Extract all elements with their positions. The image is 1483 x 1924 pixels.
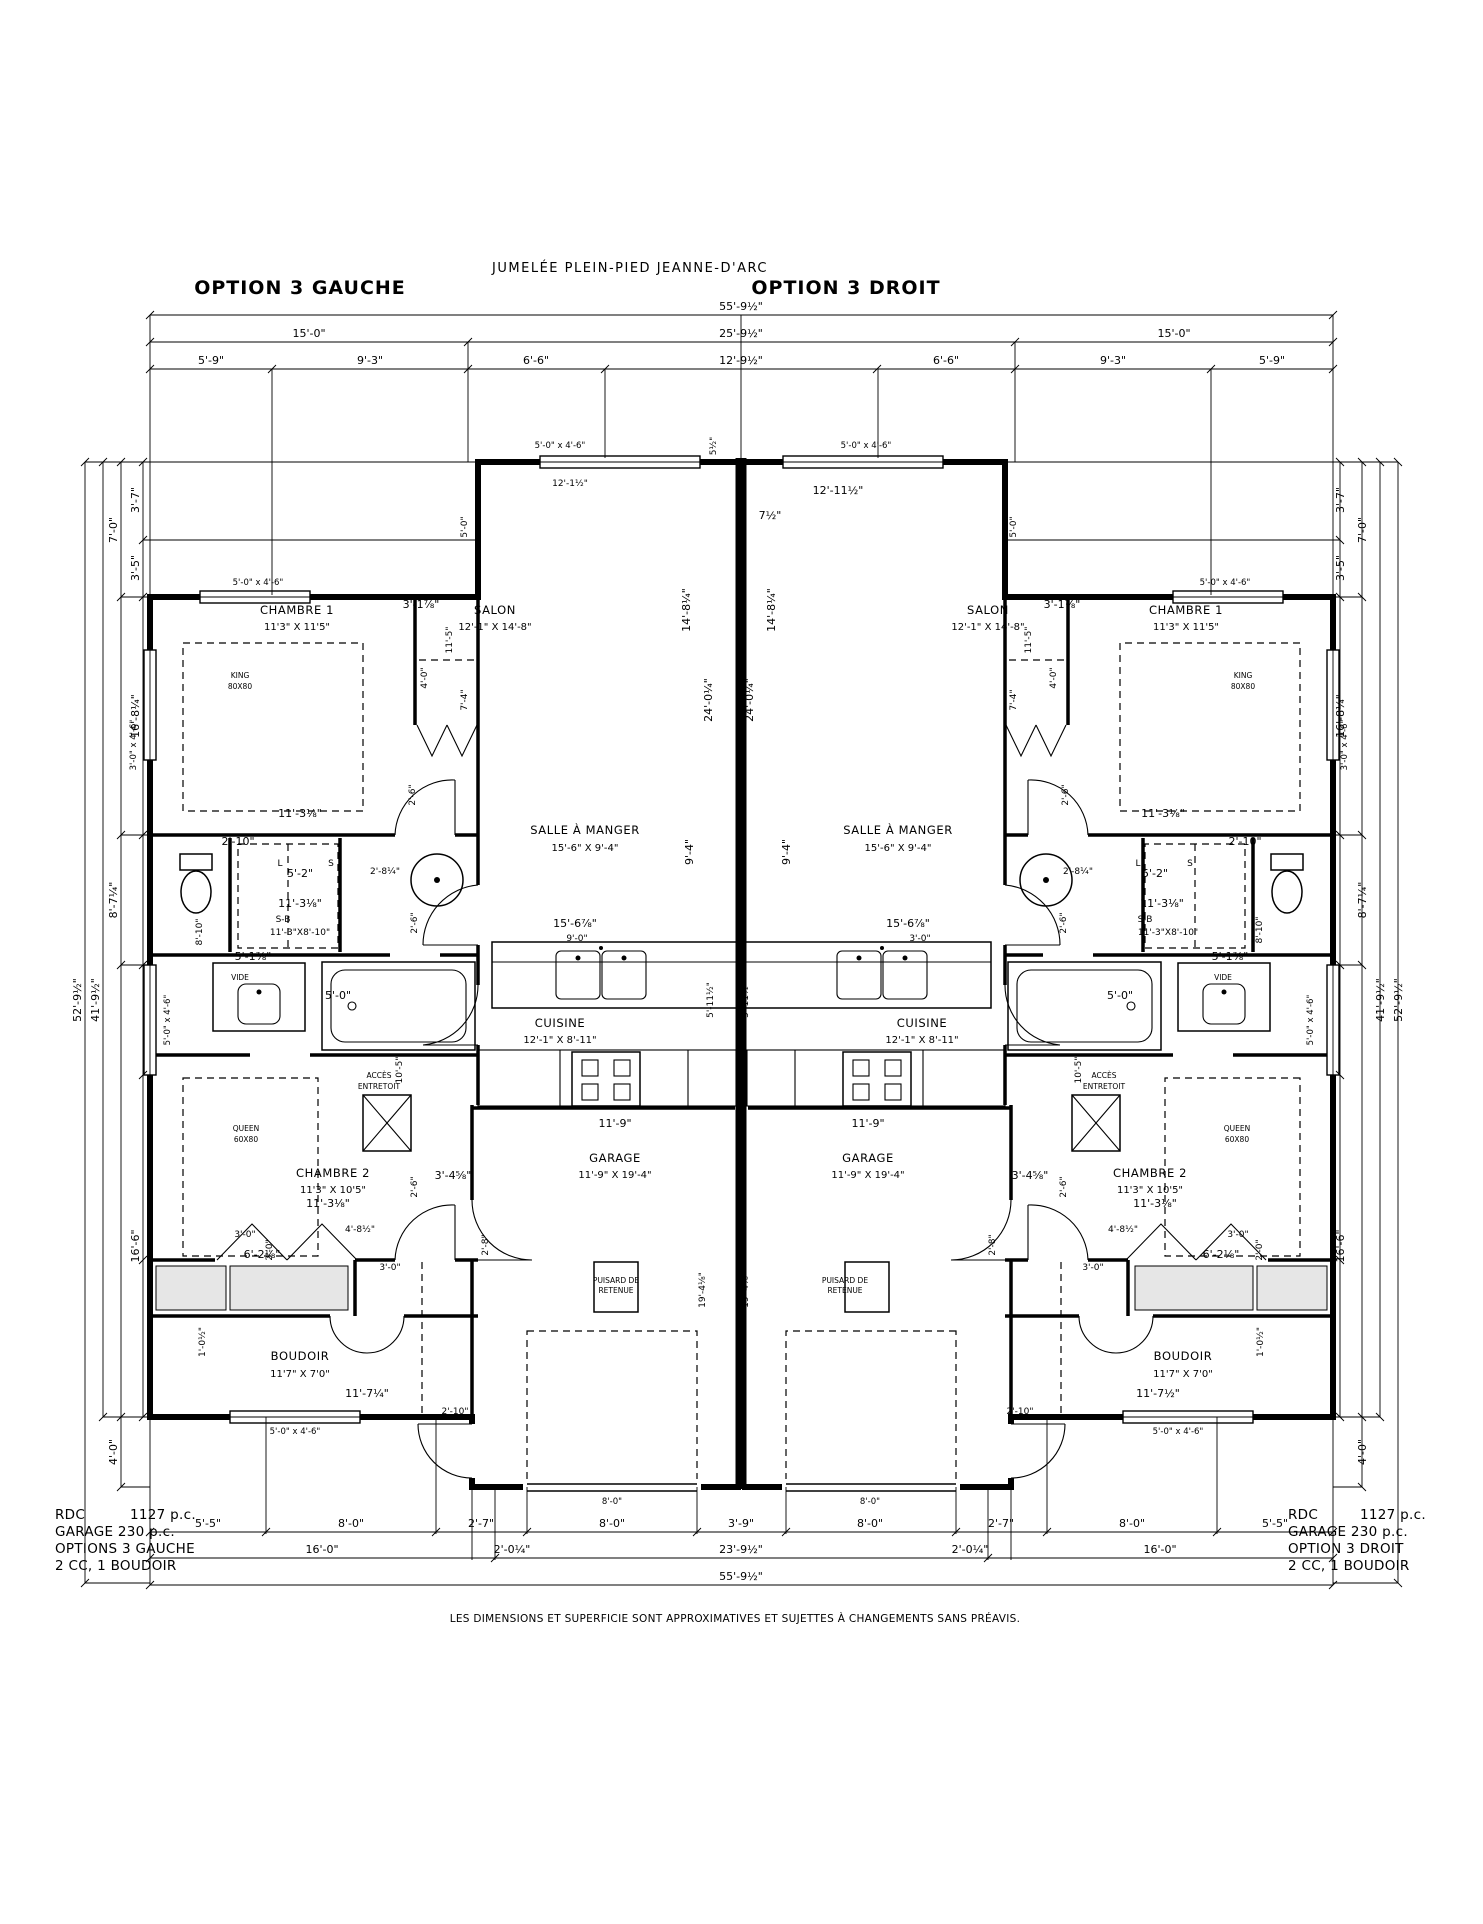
config-line: 2 CC, 1 BOUDOIR — [55, 1558, 177, 1574]
dim-label: 2'-8" — [988, 1234, 998, 1255]
rdc-label: RDC — [55, 1507, 85, 1523]
window-size-label: 5'-0" x 4'-6" — [841, 441, 892, 451]
room-size: 12'-1" X 14'-8" — [951, 622, 1024, 633]
dim-label: 10'-5" — [395, 1056, 405, 1083]
dim-label: 15'-6⅞" — [553, 917, 597, 930]
dim-label: 3'-1⅞" — [403, 598, 440, 611]
dim-label: 15'-0" — [1157, 327, 1190, 340]
window-size-label: 5'-0" x 4'-6" — [535, 441, 586, 451]
dim-label: 7'-4" — [1009, 689, 1019, 710]
dim-label: 2'-0" — [265, 1239, 275, 1260]
closet-shelf — [156, 1266, 226, 1310]
vanity-sink — [213, 963, 305, 1031]
dim-label: 12'-11½" — [813, 484, 864, 497]
kitchen-counter-stove — [478, 1050, 736, 1106]
dim-label: 3'-7" — [129, 487, 142, 513]
option-name: OPTIONS 3 GAUCHE — [55, 1541, 195, 1557]
dim-label: 8'-10" — [1255, 916, 1265, 943]
dim-label: 2'-8¼" — [1063, 867, 1093, 877]
config-line: 2 CC, 1 BOUDOIR — [1288, 1558, 1410, 1574]
bed-label: 80X80 — [1231, 682, 1255, 691]
room-label-chambre2: CHAMBRE 2 — [1113, 1166, 1187, 1180]
dim-label: 7½" — [759, 509, 782, 522]
dim-label: 5'-11½" — [706, 982, 716, 1018]
option-right-title: OPTION 3 DROIT — [751, 277, 940, 299]
garage-apron — [527, 1331, 697, 1481]
room-size: 15'-6" X 9'-4" — [865, 843, 932, 854]
dim-label: 9'-4" — [683, 839, 696, 865]
party-wall — [736, 458, 747, 1489]
dim-label: 11'-3⅛" — [1141, 807, 1185, 820]
dryer-label: S — [328, 859, 334, 869]
garage-door — [523, 1479, 701, 1495]
room-size: 12'-1" X 8'-11" — [523, 1035, 596, 1046]
room-size: 11'-9" X 19'-4" — [831, 1170, 904, 1181]
bed-label: QUEEN — [233, 1124, 259, 1133]
dim-label: 1'-0½" — [1256, 1327, 1266, 1357]
dim-label: 10'-5" — [1074, 1056, 1084, 1083]
dim-label: 8'-0" — [857, 1517, 883, 1530]
sump-label: PUISARD DE — [822, 1276, 868, 1285]
dim-label: 3'-5" — [129, 555, 142, 581]
dim-label: 11'-3⅛" — [1140, 897, 1184, 910]
room-size: 11'-3"X8'-10" — [270, 928, 330, 938]
dim-label: 5'-1⅞" — [1212, 950, 1249, 963]
dim-label: 9'-0" — [566, 934, 587, 944]
bed-label: 60X80 — [234, 1135, 258, 1144]
dim-label: 16'-0" — [305, 1543, 338, 1556]
dim-label: 2'-8¼" — [370, 867, 400, 877]
room-label-boudoir: BOUDOIR — [1154, 1349, 1213, 1363]
dim-label: 19'-4⅛" — [698, 1272, 708, 1308]
dim-label: 4'-0" — [1049, 667, 1059, 688]
dim-label: 2'-10" — [1228, 835, 1261, 848]
room-label-chambre1: CHAMBRE 1 — [1149, 603, 1223, 617]
attic-access-hatch — [363, 1095, 411, 1151]
dim-label: 8'-0" — [1119, 1517, 1145, 1530]
sump-label: PUISARD DE — [593, 1276, 639, 1285]
room-size: 11'-9" X 19'-4" — [578, 1170, 651, 1181]
dim-label: 11'-7½" — [1136, 1387, 1180, 1400]
bed-label: KING — [1234, 671, 1253, 680]
room-size: 11'3" X 10'5" — [300, 1185, 366, 1196]
room-size: 11'3" X 11'5" — [1153, 622, 1219, 633]
unit-geometry-left — [81, 315, 741, 1587]
dim-label: 4'-0" — [420, 667, 430, 688]
rdc-label: RDC — [1288, 1507, 1318, 1523]
dim-label: 8'-10" — [195, 918, 205, 945]
dim-label: 11'-9" — [598, 1117, 631, 1130]
dim-label: 9'-4" — [780, 839, 793, 865]
disclaimer: LES DIMENSIONS ET SUPERFICIE SONT APPROX… — [450, 1612, 1021, 1625]
dim-label: 55'-9½" — [719, 300, 763, 313]
entry-door — [418, 1424, 478, 1478]
attic-access-label: ENTRETOIT — [1083, 1082, 1126, 1091]
kitchen-island — [492, 942, 738, 1008]
room-size: 11'-3"X8'-10" — [1138, 928, 1198, 938]
dim-label: 7'-0" — [107, 517, 120, 543]
window-size-label: 5'-0" x 4'-6" — [1200, 578, 1251, 588]
dim-label: 8'-0" — [338, 1517, 364, 1530]
room-label-sdb: S-B — [276, 915, 291, 925]
dim-label: 16'-0" — [1143, 1543, 1176, 1556]
laundry-label: L — [1135, 859, 1140, 869]
king-bed — [183, 643, 363, 811]
window-size-label: 5'-0" x 4'-6" — [163, 995, 173, 1046]
dim-label: 3'-9" — [728, 1517, 754, 1530]
dim-label: 2'-6" — [408, 784, 418, 805]
bed-label: 60X80 — [1225, 1135, 1249, 1144]
rdc-value: 1127 p.c. — [130, 1507, 196, 1523]
dim-label: 2'-6" — [410, 1176, 420, 1197]
dim-label: 1'-0½" — [198, 1327, 208, 1357]
dim-label: 19'-4⅛" — [741, 1272, 751, 1308]
dim-label: 4'-0" — [107, 1439, 120, 1465]
dim-label: 5'-11½" — [741, 982, 751, 1018]
dim-label: 8'-7¼" — [1356, 882, 1369, 919]
room-label-salon: SALON — [474, 603, 516, 617]
window-size-label: 3'-0" x 4'-6" — [129, 720, 139, 771]
dim-label: 2'-10" — [1006, 1407, 1033, 1417]
room-label-garage: GARAGE — [842, 1151, 894, 1165]
dim-label: 5'-0" — [460, 516, 470, 537]
floor-plan-sheet: JUMELÉE PLEIN-PIED JEANNE-D'ARC OPTION 3… — [0, 0, 1483, 1920]
room-label-garage: GARAGE — [589, 1151, 641, 1165]
dim-label: 2'-7" — [988, 1517, 1014, 1530]
dim-label: 5'-5" — [195, 1517, 221, 1530]
dim-label: 24'-0¼" — [702, 678, 715, 722]
room-label-salle-a-manger: SALLE À MANGER — [843, 822, 953, 837]
dim-label: 8'-7¼" — [107, 882, 120, 919]
dim-label: 2'-10" — [441, 1407, 468, 1417]
dim-label: 5'-0" — [325, 989, 351, 1002]
dim-label: 24'-0¼" — [743, 678, 756, 722]
floor-plan-drawing: JUMELÉE PLEIN-PIED JEANNE-D'ARC OPTION 3… — [0, 0, 1483, 1920]
dim-label: 41'-9½" — [89, 978, 102, 1022]
room-label-sdb: S-B — [1138, 915, 1153, 925]
dim-label: 2'-0¼" — [494, 1543, 531, 1556]
dim-label: 15'-0" — [292, 327, 325, 340]
dim-label: 3'-0" — [1082, 1263, 1103, 1273]
dim-label: 8'-0" — [599, 1517, 625, 1530]
room-label-chambre2: CHAMBRE 2 — [296, 1166, 370, 1180]
dim-label: 5'-5" — [1262, 1517, 1288, 1530]
dim-label: 52'-9½" — [71, 978, 84, 1022]
garage-door-size: 8'-0" — [602, 1497, 622, 1507]
dim-label: 3'-0" — [234, 1230, 255, 1240]
dim-label: 6'-2⅛" — [1203, 1248, 1240, 1261]
dim-label: 2'-6" — [1059, 1176, 1069, 1197]
room-size: 11'7" X 7'0" — [1153, 1369, 1213, 1380]
dim-label: 3'-0" — [909, 934, 930, 944]
dim-label: 9'-3" — [1100, 354, 1126, 367]
room-label-chambre1: CHAMBRE 1 — [260, 603, 334, 617]
window-size-label: 5'-0" x 4'-6" — [233, 578, 284, 588]
dim-label: 11'-9" — [851, 1117, 884, 1130]
room-size: 15'-6" X 9'-4" — [552, 843, 619, 854]
option-left-title: OPTION 3 GAUCHE — [194, 277, 406, 299]
dim-label: 16'-6" — [129, 1229, 142, 1262]
dim-label: 23'-9½" — [719, 1543, 763, 1556]
dim-label: 2'-10" — [221, 835, 254, 848]
dim-label: 3'-0" — [379, 1263, 400, 1273]
vanity-label: VIDE — [1214, 973, 1232, 982]
dim-label: 15'-6⅞" — [886, 917, 930, 930]
dim-label: 4'-8½" — [1108, 1225, 1138, 1235]
dim-label: 2'-7" — [468, 1517, 494, 1530]
dim-label: 12'-9½" — [719, 354, 763, 367]
dim-label: 11'-7¼" — [345, 1387, 389, 1400]
dim-label: 11'-5" — [445, 626, 455, 653]
dim-label: 9'-3" — [357, 354, 383, 367]
dim-label: 3'-7" — [1334, 487, 1347, 513]
sump-label: RETENUE — [827, 1286, 862, 1295]
dim-label: 3'-0" — [1227, 1230, 1248, 1240]
corner-sink — [411, 854, 463, 906]
dim-label: 52'-9½" — [1392, 978, 1405, 1022]
dim-label: 12'-1½" — [552, 479, 588, 489]
dim-label: 11'-3⅛" — [278, 897, 322, 910]
info-block-left: RDC 1127 p.c. GARAGE 230 p.c. OPTIONS 3 … — [55, 1507, 196, 1574]
dim-label: 5'-9" — [1259, 354, 1285, 367]
window-size-label: 5'-0" x 4'-6" — [1306, 995, 1316, 1046]
garage-door-size: 8'-0" — [860, 1497, 880, 1507]
dim-label: 6'-6" — [523, 354, 549, 367]
dim-label: 4'-0" — [1356, 1439, 1369, 1465]
option-name: OPTION 3 DROIT — [1288, 1541, 1404, 1557]
dim-label: 3'-5" — [1334, 555, 1347, 581]
dim-label: 5½" — [709, 437, 719, 456]
info-block-right: RDC 1127 p.c. GARAGE 230 p.c. OPTION 3 D… — [1288, 1507, 1426, 1574]
window-size-label: 5'-0" x 4'-6" — [1153, 1427, 1204, 1437]
sheet-title: JUMELÉE PLEIN-PIED JEANNE-D'ARC — [491, 260, 768, 276]
dim-label: 2'-0¼" — [952, 1543, 989, 1556]
room-size: 12'-1" X 8'-11" — [885, 1035, 958, 1046]
dim-label: 7'-0" — [1356, 517, 1369, 543]
room-size: 11'3" X 11'5" — [264, 622, 330, 633]
garage-area: GARAGE 230 p.c. — [1288, 1524, 1408, 1540]
dim-label: 2'-6" — [410, 912, 420, 933]
dim-label: 16'-6" — [1334, 1229, 1347, 1262]
bed-label: 80X80 — [228, 682, 252, 691]
dim-label: 5'-2" — [1142, 867, 1168, 880]
dim-label: 14'-8¼" — [680, 588, 693, 632]
laundry-label: L — [277, 859, 282, 869]
dim-label: 11'-3⅛" — [1133, 1197, 1177, 1210]
room-label-cuisine: CUISINE — [897, 1016, 948, 1030]
dim-label: 7'-4" — [460, 689, 470, 710]
dim-label: 5'-0" — [1107, 989, 1133, 1002]
rdc-value: 1127 p.c. — [1360, 1507, 1426, 1523]
dim-label: 3'-4⅝" — [1012, 1169, 1049, 1182]
dim-label: 11'-5" — [1024, 626, 1034, 653]
dim-label: 6'-6" — [933, 354, 959, 367]
room-label-boudoir: BOUDOIR — [271, 1349, 330, 1363]
dim-label: 2'-8" — [481, 1234, 491, 1255]
room-size: 11'7" X 7'0" — [270, 1369, 330, 1380]
garage-area: GARAGE 230 p.c. — [55, 1524, 175, 1540]
dim-label: 2'-6" — [1061, 784, 1071, 805]
room-label-salle-a-manger: SALLE À MANGER — [530, 822, 640, 837]
attic-access-label: ACCÈS — [367, 1071, 392, 1080]
closet-shelf — [230, 1266, 348, 1310]
bathtub — [322, 962, 475, 1050]
dim-label: 41'-9½" — [1374, 978, 1387, 1022]
dim-label: 2'-0" — [1255, 1239, 1265, 1260]
toilet — [180, 854, 212, 913]
room-label-cuisine: CUISINE — [535, 1016, 586, 1030]
dim-label: 11'-3⅛" — [306, 1197, 350, 1210]
room-size: 12'-1" X 14'-8" — [458, 622, 531, 633]
dim-label: 11'-3⅛" — [278, 807, 322, 820]
dim-label: 14'-8¼" — [765, 588, 778, 632]
dim-label: 5'-0" — [1009, 516, 1019, 537]
bed-label: KING — [231, 671, 250, 680]
window-size-label: 5'-0" x 4'-6" — [270, 1427, 321, 1437]
dim-label: 3'-1⅞" — [1044, 598, 1081, 611]
room-label-salon: SALON — [967, 603, 1009, 617]
dryer-label: S — [1187, 859, 1193, 869]
dim-label: 4'-8½" — [345, 1225, 375, 1235]
dim-label: 55'-9½" — [719, 1570, 763, 1583]
sump-label: RETENUE — [598, 1286, 633, 1295]
room-size: 11'3" X 10'5" — [1117, 1185, 1183, 1196]
dim-label: 5'-9" — [198, 354, 224, 367]
dim-label: 3'-4⅝" — [435, 1169, 472, 1182]
bed-label: QUEEN — [1224, 1124, 1250, 1133]
attic-access-label: ACCÈS — [1092, 1071, 1117, 1080]
dim-label: 5'-1⅞" — [235, 950, 272, 963]
dim-label: 25'-9½" — [719, 327, 763, 340]
dim-label: 2'-6" — [1059, 912, 1069, 933]
dim-label: 5'-2" — [287, 867, 313, 880]
window-size-label: 3'-0" x 4'-6" — [1340, 720, 1350, 771]
vanity-label: VIDE — [231, 973, 249, 982]
fixtures — [156, 643, 738, 1481]
